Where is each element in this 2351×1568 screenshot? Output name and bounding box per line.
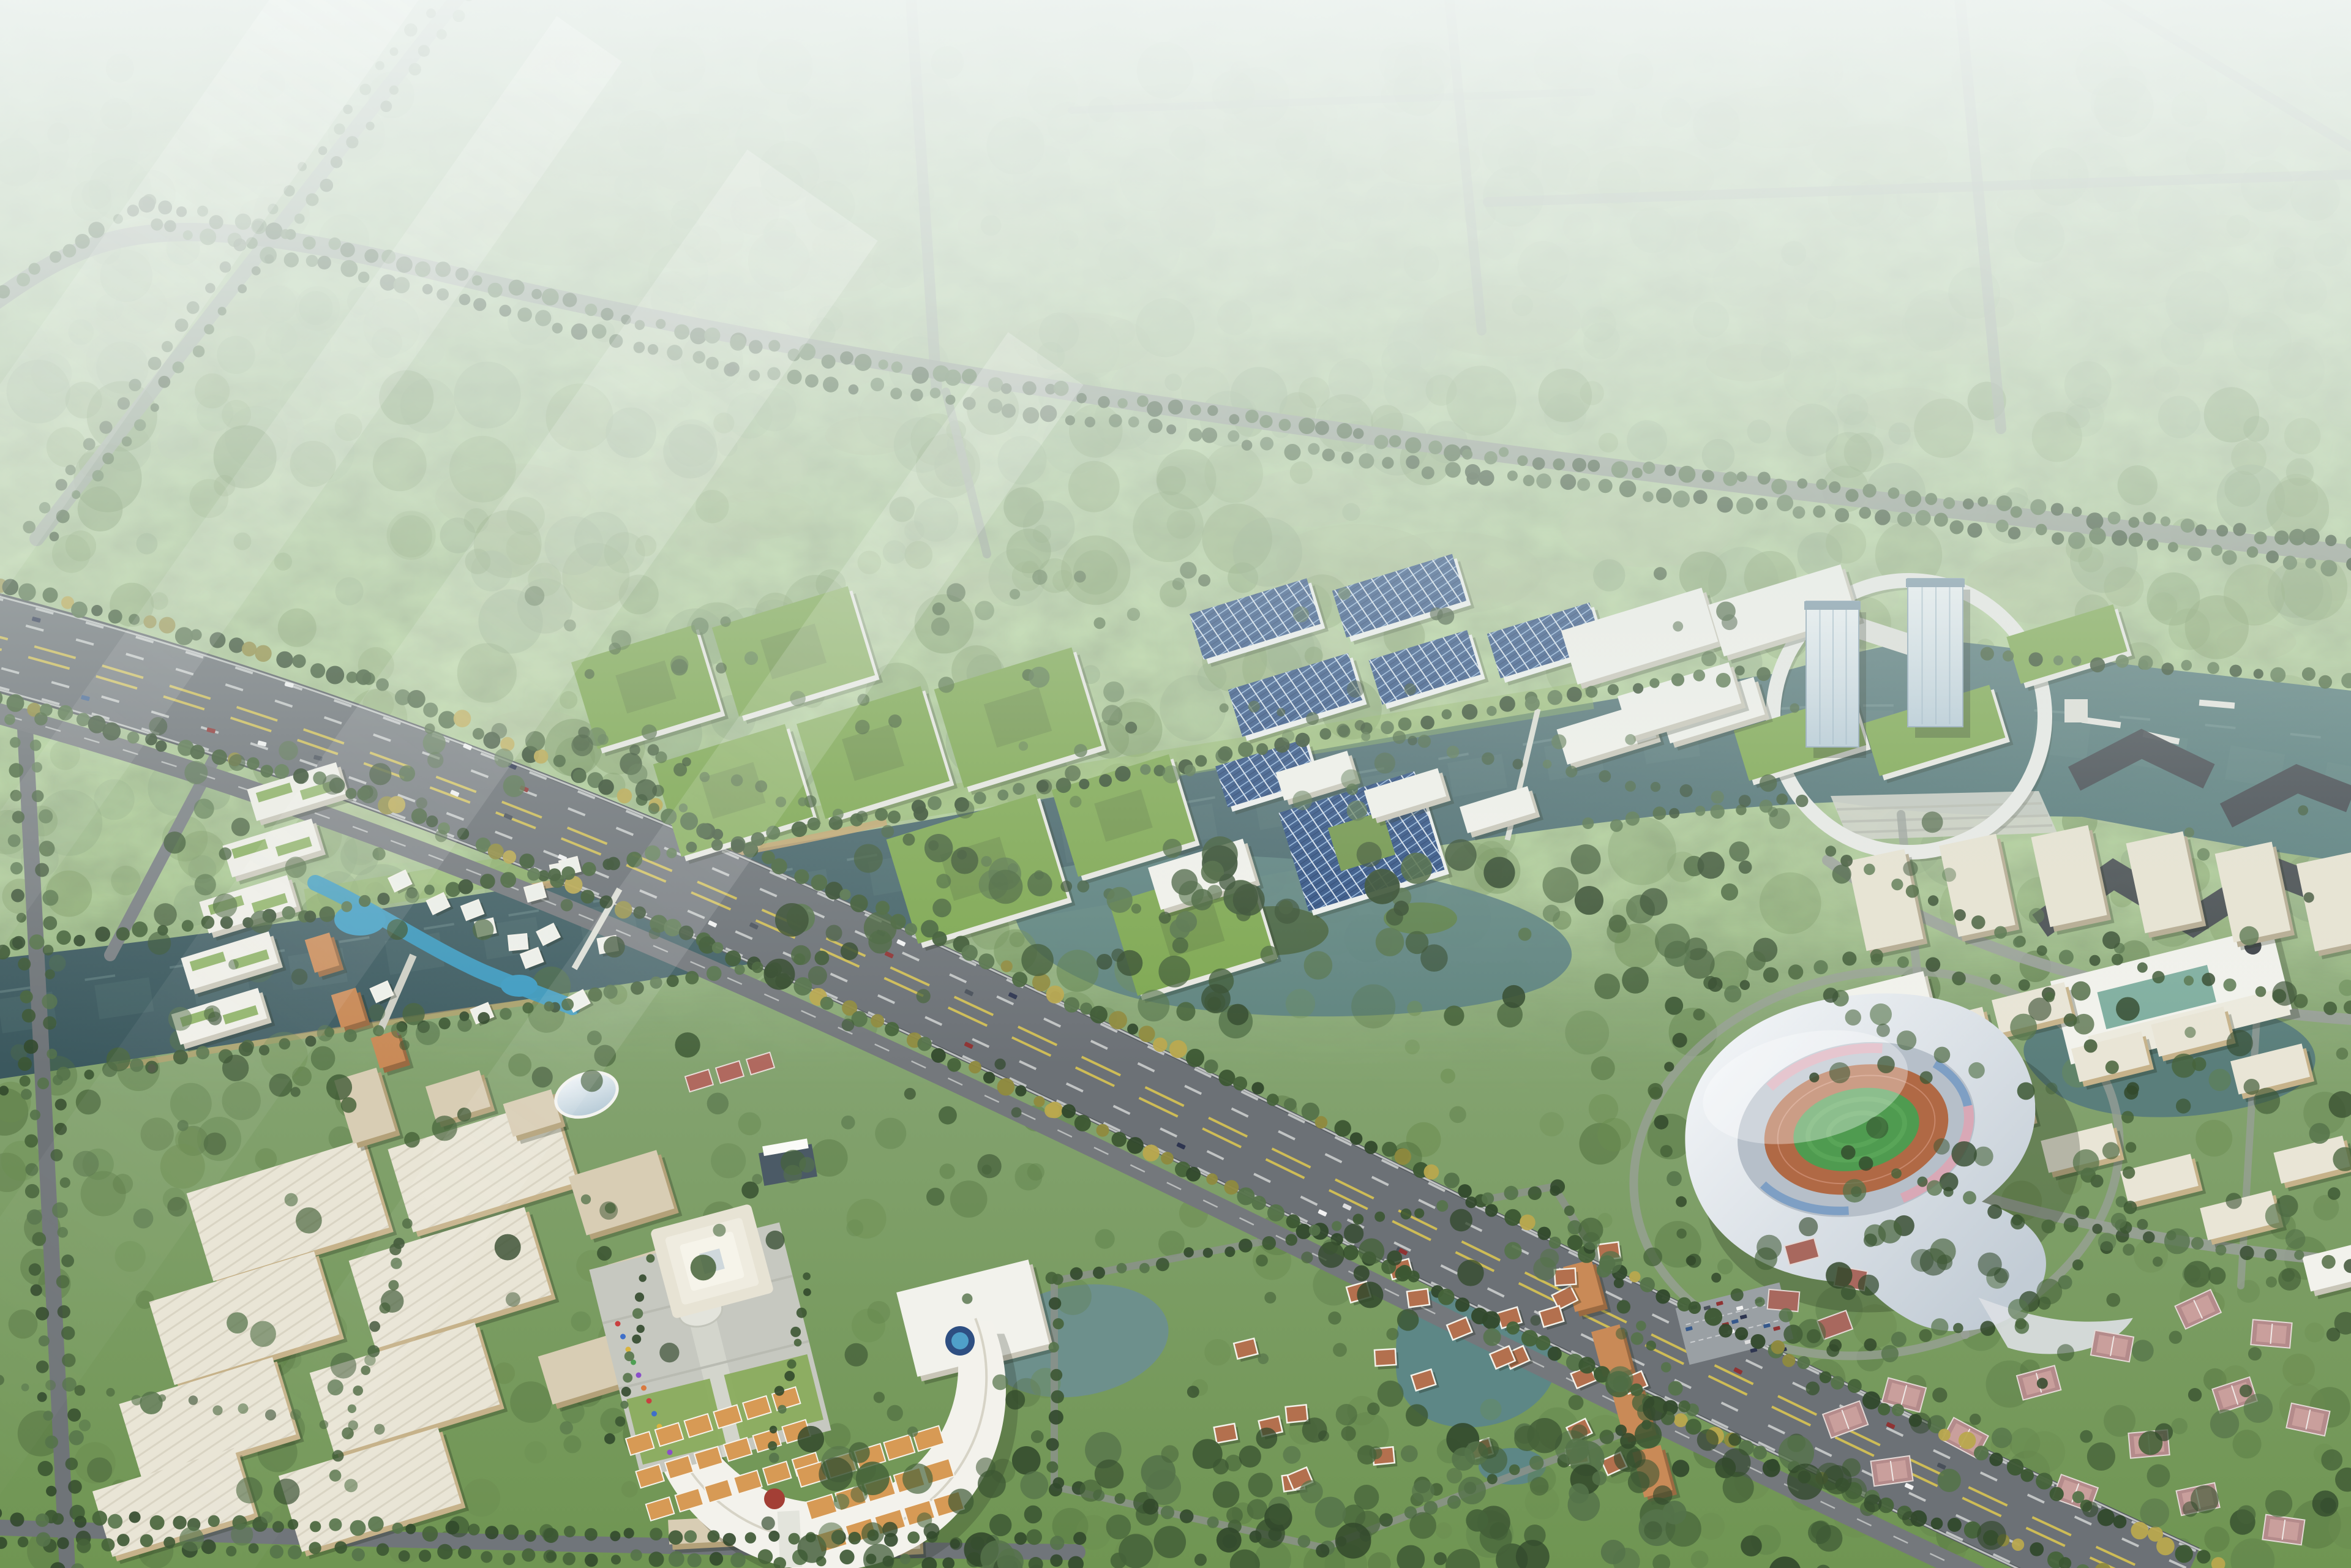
aerial-masterplan-rendering	[0, 0, 2351, 1568]
